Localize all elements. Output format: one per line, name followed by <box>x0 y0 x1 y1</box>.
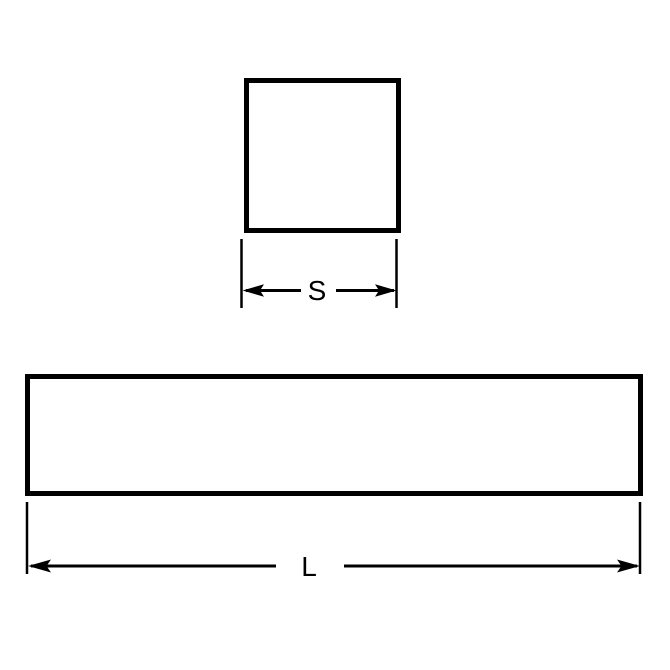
drawing-svg: S L <box>0 0 670 670</box>
technical-drawing: S L <box>0 0 670 670</box>
square-cross-section-outline <box>247 81 399 231</box>
bar-side-view-outline <box>28 377 641 494</box>
dimension-label-l: L <box>301 551 317 582</box>
dimension-label-s: S <box>308 275 327 306</box>
